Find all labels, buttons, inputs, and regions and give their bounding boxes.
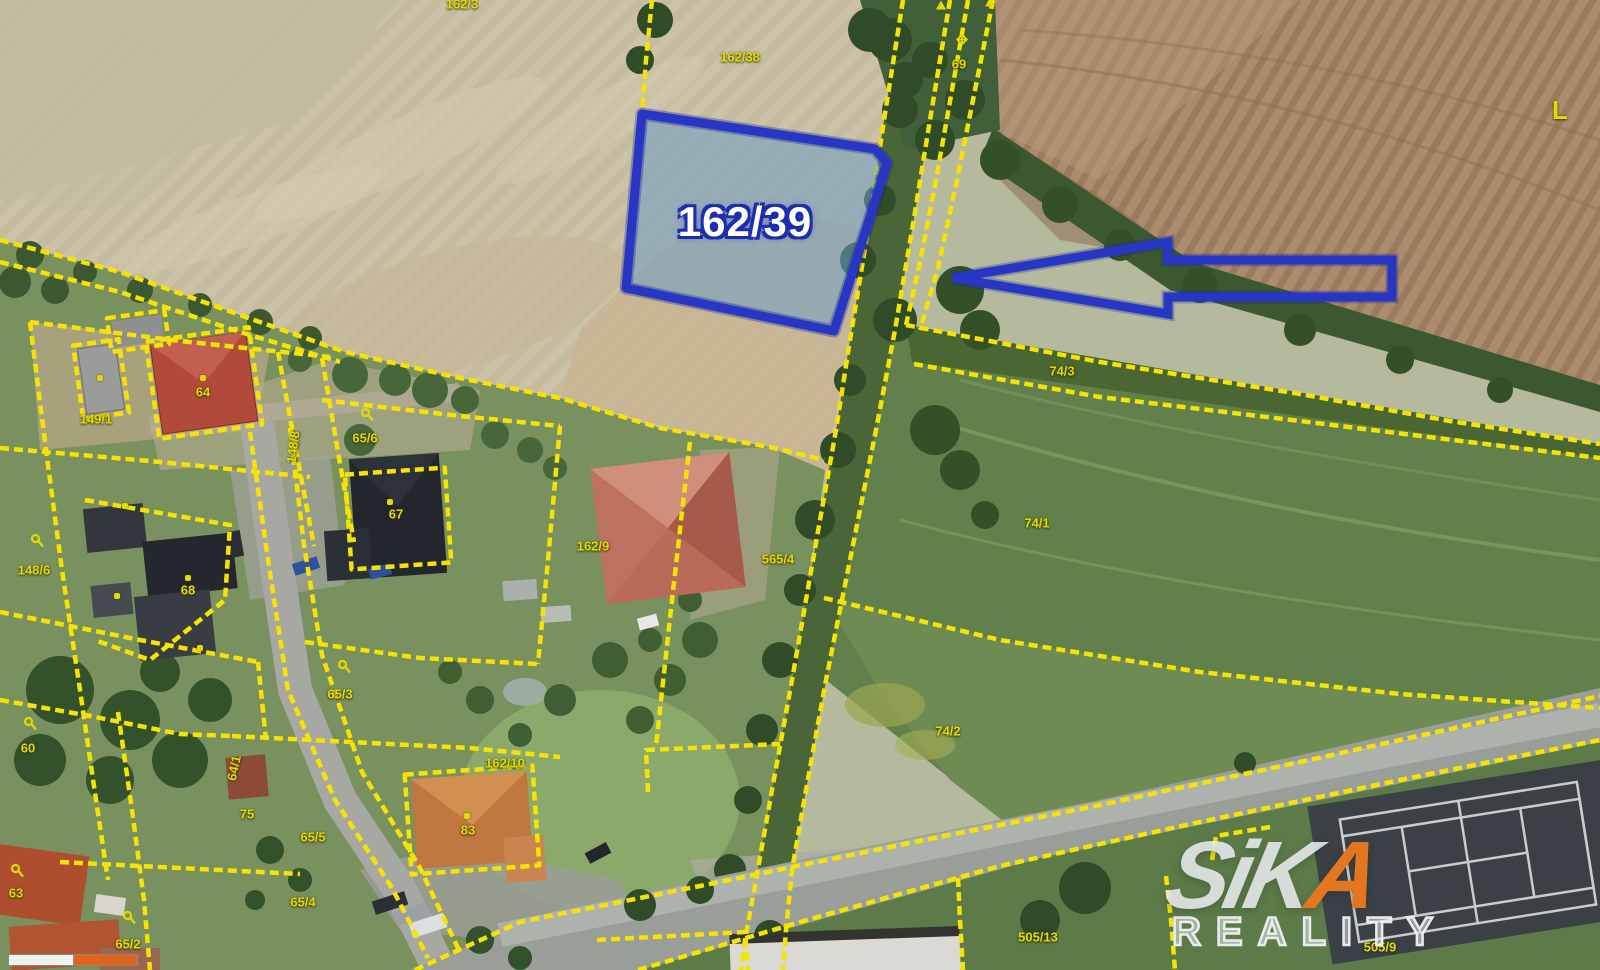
building-162-9 [590, 452, 746, 604]
map-scale-bar [8, 954, 138, 966]
scale-segment-orange [74, 954, 138, 966]
watermark-logo: SiKA REALITY [1168, 828, 1588, 968]
brand-wordmark: SiKA [1158, 828, 1598, 924]
highlighted-parcel-label: 162/39 [678, 198, 812, 246]
map-canvas[interactable]: 162/3162/3869L74/374/174/264148/8149/165… [0, 0, 1600, 970]
building-68 [142, 532, 237, 597]
scale-segment-white [8, 954, 74, 966]
